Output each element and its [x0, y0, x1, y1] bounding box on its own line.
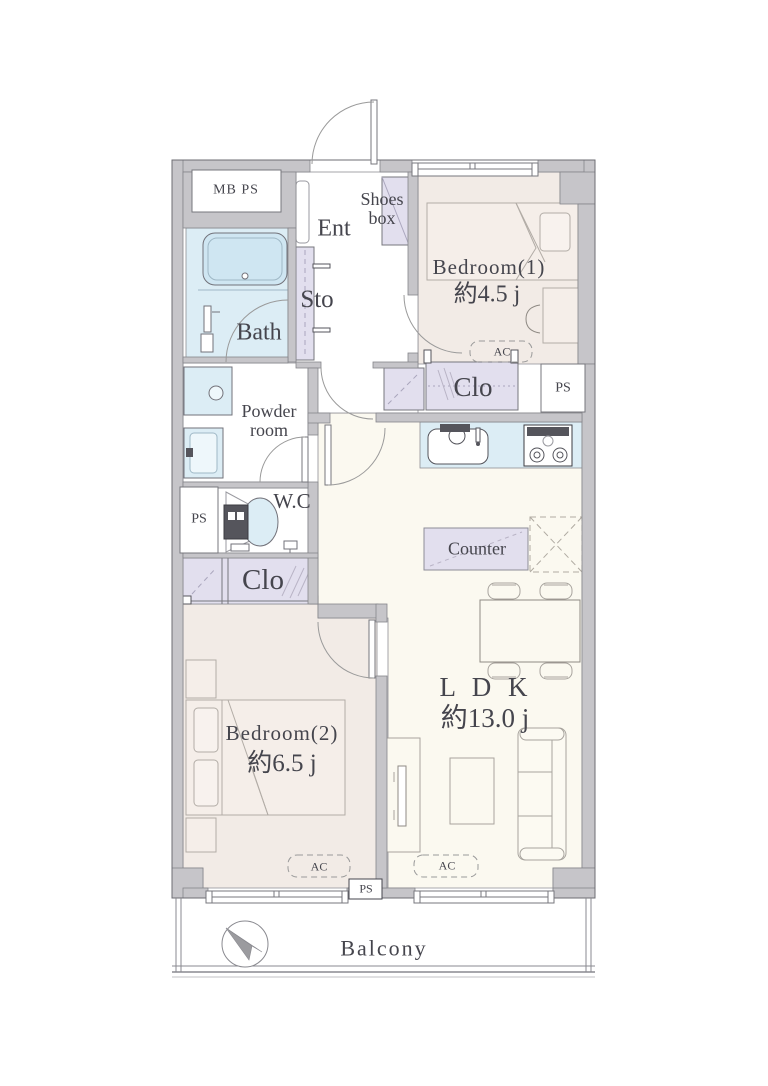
shoes-box-label-line1: Shoes	[360, 190, 403, 209]
wc-label: W.C	[273, 490, 310, 512]
bathtub-icon	[198, 233, 288, 290]
closet-top-label: Clo	[453, 373, 492, 401]
window-bedroom1	[412, 163, 538, 176]
bedroom1-label: Bedroom(1)	[433, 256, 546, 278]
storage-label: Sto	[300, 287, 333, 313]
floor-plan: MB PS Ent Shoes box Sto Bath Bedroom(1) …	[0, 0, 768, 1086]
ac-label-ldk: AC	[439, 860, 456, 873]
powder-room-label-line2: room	[242, 421, 297, 440]
tv-board-icon	[385, 738, 420, 852]
ac-label-bedroom2: AC	[311, 861, 328, 874]
compass-icon	[222, 921, 268, 967]
ps-label-left: PS	[191, 513, 207, 528]
laundry-pan-icon	[184, 367, 232, 415]
entrance-label: Ent	[317, 216, 350, 241]
refrigerator-space-icon	[530, 517, 582, 572]
stove-icon	[524, 425, 572, 466]
counter-label: Counter	[448, 540, 506, 559]
ldk-size: 約13.0 j	[441, 704, 530, 732]
closet-left-label: Clo	[242, 565, 284, 595]
ldk-label: L D K	[440, 673, 533, 701]
window-bedroom2	[206, 891, 348, 903]
ac-label-bedroom1: AC	[494, 346, 511, 359]
shoes-box-label-line2: box	[360, 209, 403, 228]
powder-room-label: Powder room	[242, 402, 297, 440]
kitchen-sink-icon	[428, 424, 488, 464]
bedroom2-label: Bedroom(2)	[226, 722, 339, 744]
coffee-table-icon	[450, 758, 494, 824]
mbps-label: MB PS	[213, 184, 259, 199]
window-ldk	[414, 891, 554, 903]
front-door	[312, 100, 377, 164]
ps-label-top-right: PS	[555, 382, 571, 397]
sofa-icon	[518, 728, 566, 860]
bedroom1-size: 約4.5 j	[454, 282, 521, 307]
balcony-label: Balcony	[340, 936, 427, 959]
floor-plan-drawing	[0, 0, 768, 1086]
bath-label: Bath	[236, 320, 281, 345]
bedroom2-size: 約6.5 j	[247, 751, 316, 777]
entry-cabinet	[296, 181, 309, 243]
powder-room-label-line1: Powder	[242, 402, 297, 421]
shoes-box-label: Shoes box	[360, 190, 403, 228]
ps-label-bottom: PS	[359, 883, 372, 896]
washbasin-icon	[184, 428, 223, 478]
